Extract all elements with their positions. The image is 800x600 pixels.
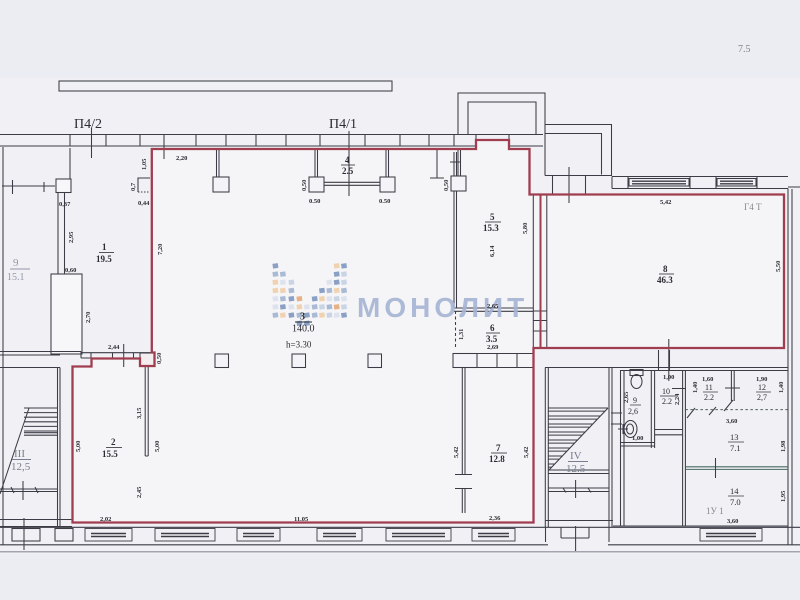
svg-text:IV: IV: [570, 450, 582, 462]
svg-text:2,02: 2,02: [100, 516, 111, 523]
svg-text:III: III: [14, 448, 25, 460]
svg-text:2,69: 2,69: [487, 344, 499, 351]
svg-text:5,42: 5,42: [453, 447, 460, 458]
svg-text:Г4 Т: Г4 Т: [744, 202, 762, 212]
svg-text:1,98: 1,98: [780, 440, 787, 452]
svg-text:0,50: 0,50: [301, 180, 308, 191]
svg-text:3,60: 3,60: [726, 418, 737, 425]
svg-text:2,70: 2,70: [85, 312, 92, 323]
svg-text:11.05: 11.05: [294, 516, 309, 523]
svg-text:7.5: 7.5: [738, 44, 751, 55]
svg-text:0.50: 0.50: [309, 198, 320, 205]
svg-text:1У 1: 1У 1: [706, 506, 724, 516]
svg-text:3: 3: [300, 312, 305, 323]
svg-text:1,40: 1,40: [778, 382, 785, 393]
svg-text:5,42: 5,42: [523, 447, 530, 458]
svg-text:7.1: 7.1: [730, 443, 741, 453]
svg-text:46.3: 46.3: [657, 275, 673, 285]
svg-text:5,00: 5,00: [154, 441, 161, 452]
svg-text:1,05: 1,05: [141, 158, 148, 170]
svg-text:6,14: 6,14: [489, 245, 496, 257]
svg-text:П4/1: П4/1: [329, 117, 357, 132]
svg-text:5,50: 5,50: [775, 261, 782, 272]
svg-text:9: 9: [633, 396, 637, 405]
svg-text:0,7: 0,7: [130, 182, 137, 191]
svg-text:1,60: 1,60: [702, 376, 713, 383]
svg-text:15.1: 15.1: [7, 272, 25, 283]
svg-text:140.0: 140.0: [292, 324, 315, 335]
svg-text:2,36: 2,36: [489, 515, 501, 522]
svg-text:2,45: 2,45: [136, 486, 143, 498]
svg-text:7,20: 7,20: [157, 244, 164, 255]
svg-text:12.5: 12.5: [566, 463, 586, 475]
svg-text:7.0: 7.0: [730, 497, 741, 507]
svg-text:2,7: 2,7: [757, 393, 767, 402]
svg-text:МОНОЛИТ: МОНОЛИТ: [357, 292, 528, 323]
svg-text:4: 4: [345, 155, 350, 165]
svg-text:12.8: 12.8: [489, 454, 505, 464]
svg-text:2,20: 2,20: [176, 155, 187, 162]
svg-text:6: 6: [490, 323, 495, 333]
svg-text:14: 14: [730, 486, 739, 496]
svg-text:1,00: 1,00: [663, 374, 674, 381]
svg-text:5,80: 5,80: [522, 223, 529, 234]
svg-text:0,50: 0,50: [156, 353, 163, 364]
svg-text:2,44: 2,44: [108, 344, 120, 351]
svg-text:5,42: 5,42: [660, 199, 671, 206]
svg-text:5: 5: [490, 212, 495, 222]
svg-text:1,90: 1,90: [756, 376, 767, 383]
svg-text:13: 13: [730, 432, 739, 442]
svg-text:0.50: 0.50: [379, 198, 390, 205]
svg-text:2.2: 2.2: [704, 393, 714, 402]
svg-text:2,65: 2,65: [487, 303, 499, 310]
svg-text:2,65: 2,65: [623, 391, 630, 403]
svg-text:15.5: 15.5: [102, 449, 118, 459]
svg-text:3,60: 3,60: [727, 518, 738, 525]
svg-text:12: 12: [758, 383, 766, 392]
svg-text:0,60: 0,60: [65, 267, 76, 274]
svg-text:9: 9: [13, 257, 19, 269]
svg-text:11: 11: [705, 383, 713, 392]
svg-text:15.3: 15.3: [483, 223, 499, 233]
svg-text:5,00: 5,00: [75, 441, 82, 452]
svg-text:19.5: 19.5: [96, 254, 112, 264]
svg-text:3.5: 3.5: [486, 334, 498, 344]
svg-text:h=3.30: h=3.30: [286, 340, 312, 350]
svg-text:2,95: 2,95: [68, 231, 75, 243]
svg-text:2.2: 2.2: [662, 397, 672, 406]
svg-text:0,50: 0,50: [443, 180, 450, 191]
svg-text:1,31: 1,31: [458, 329, 465, 340]
svg-text:10: 10: [662, 387, 670, 396]
svg-text:1: 1: [102, 242, 107, 252]
svg-text:1,40: 1,40: [692, 382, 699, 393]
svg-text:1,00: 1,00: [632, 435, 643, 442]
svg-text:3,15: 3,15: [136, 407, 143, 419]
svg-text:8: 8: [663, 264, 668, 274]
svg-text:П4/2: П4/2: [74, 117, 102, 132]
svg-text:12,5: 12,5: [11, 461, 31, 473]
svg-text:2,24: 2,24: [674, 393, 681, 405]
svg-text:1,95: 1,95: [780, 490, 787, 502]
svg-text:7: 7: [496, 443, 501, 453]
svg-text:2.5: 2.5: [342, 166, 354, 176]
svg-text:0,44: 0,44: [138, 200, 150, 207]
svg-text:0,37: 0,37: [59, 201, 71, 208]
svg-text:2: 2: [111, 437, 116, 447]
svg-text:2,6: 2,6: [628, 407, 638, 416]
